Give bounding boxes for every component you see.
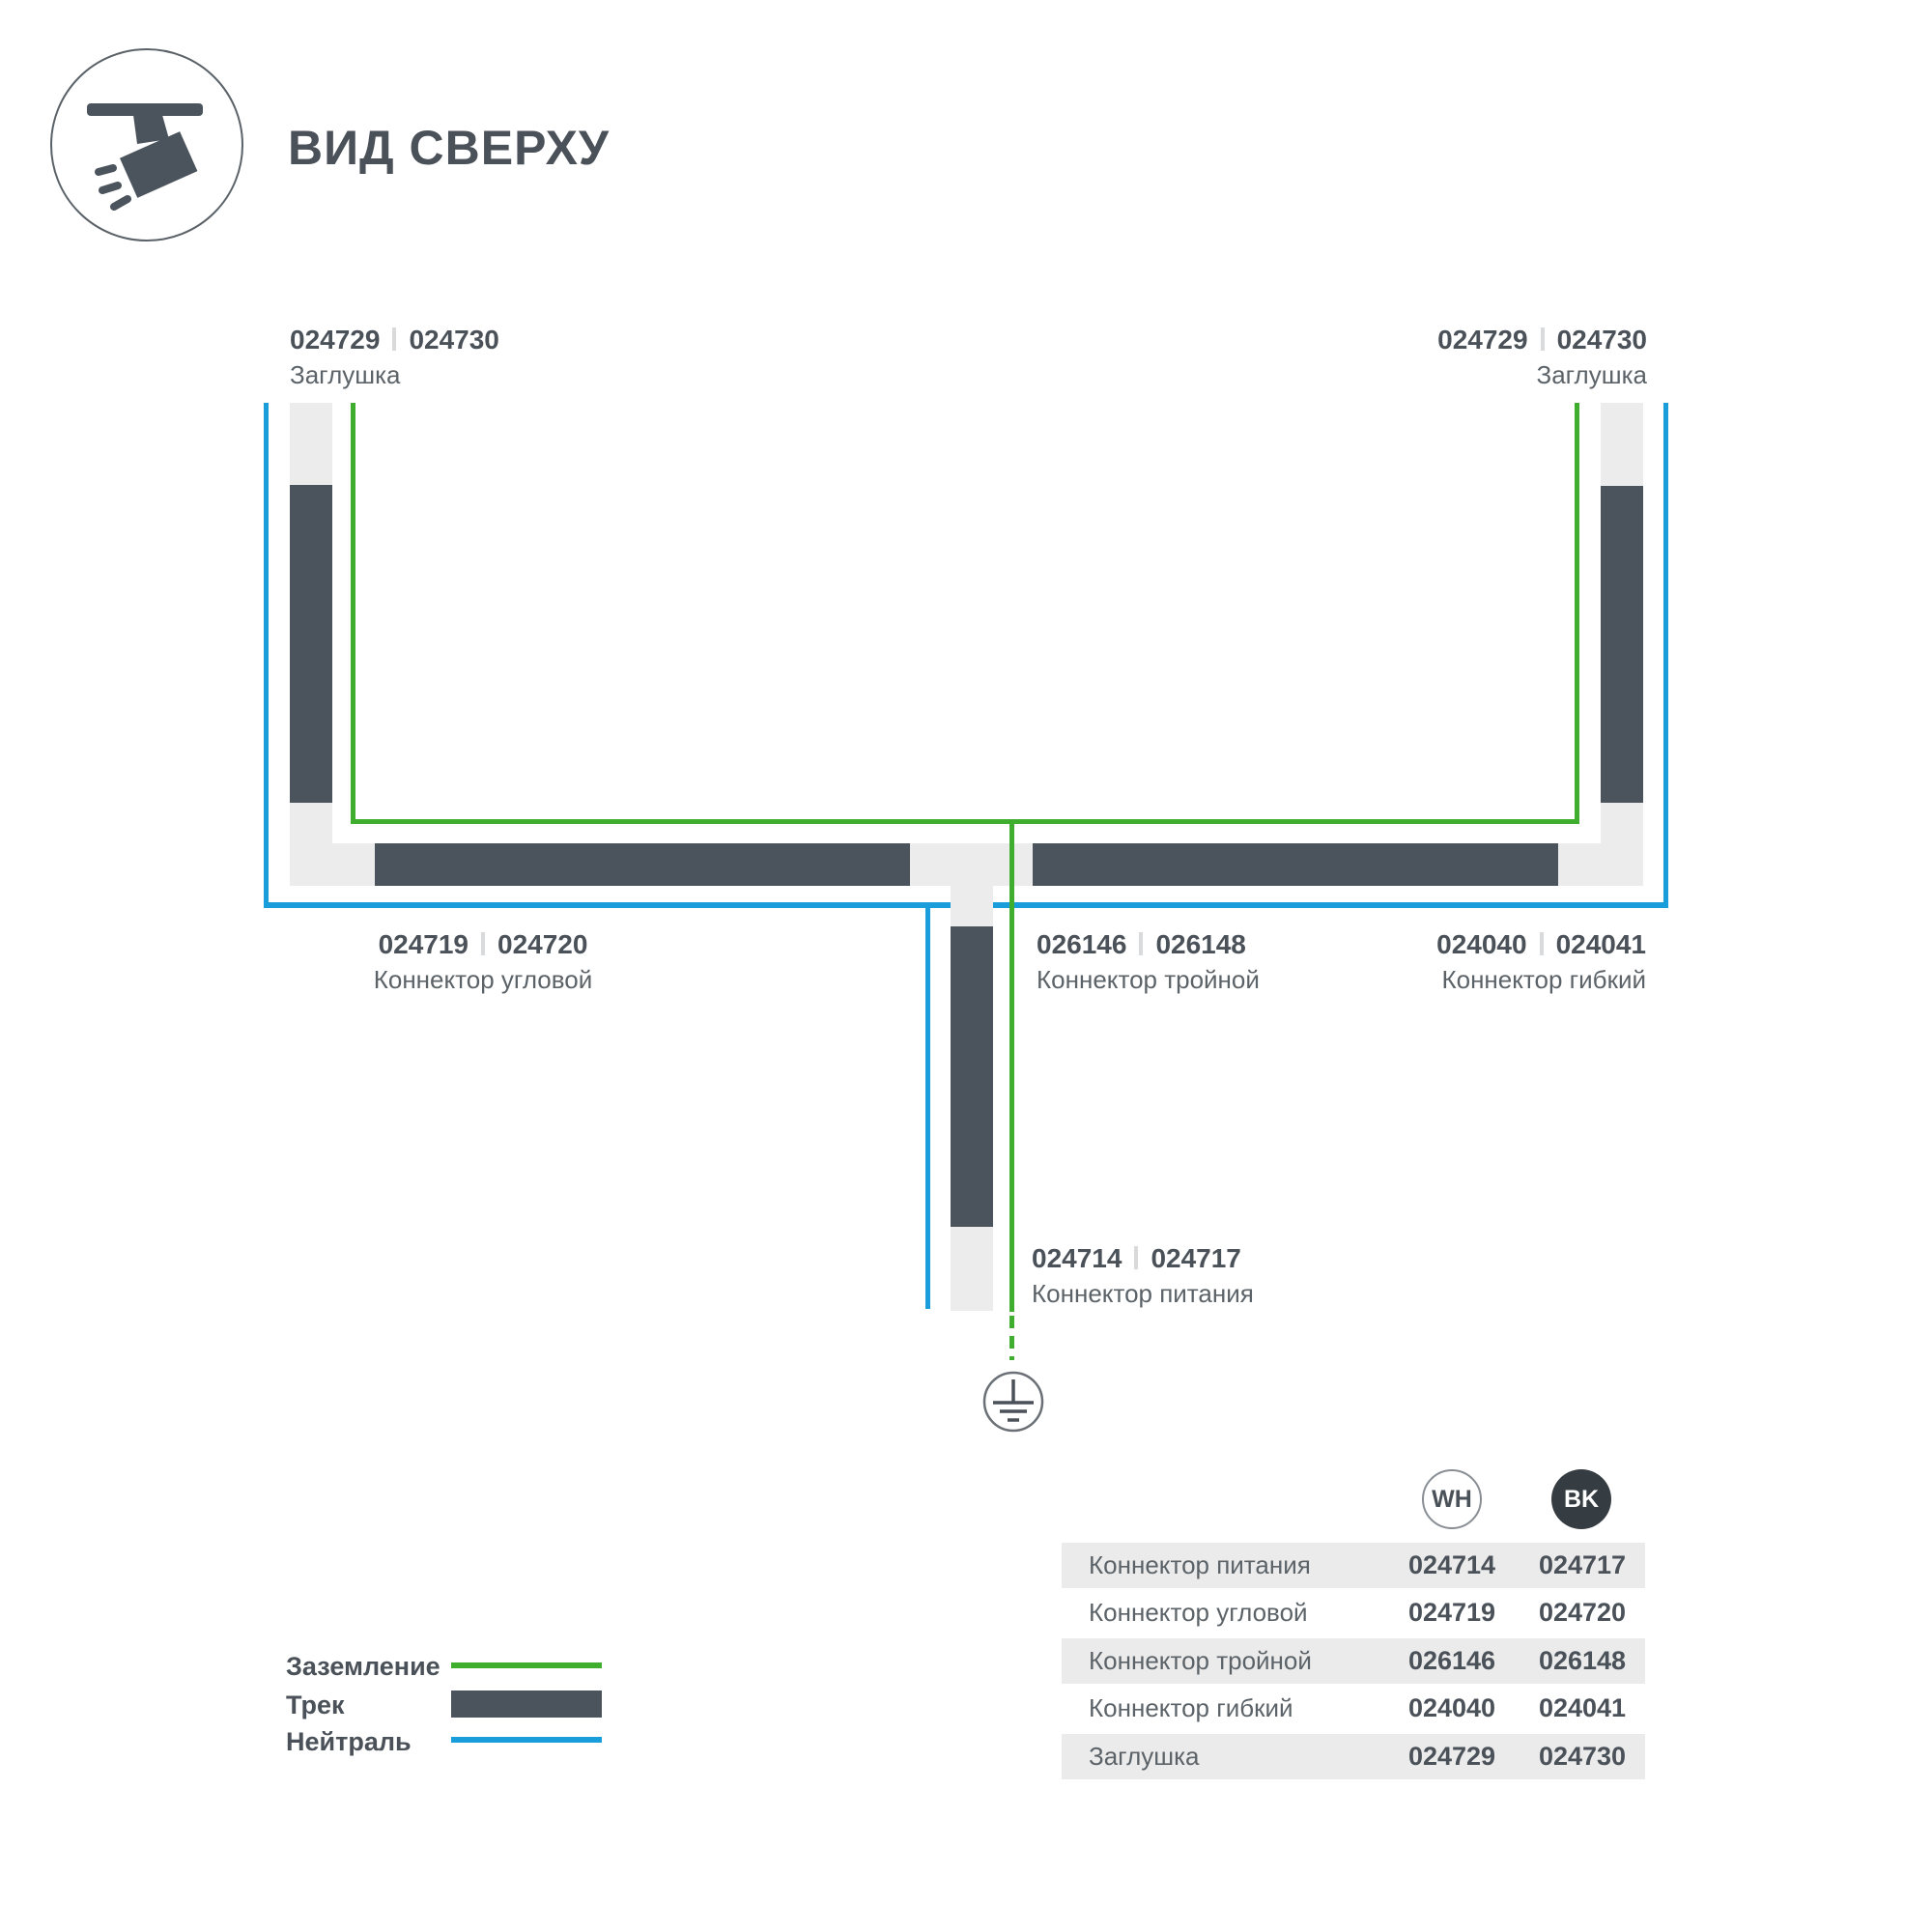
label-corner-connector: 024719024720 Коннектор угловой [290, 930, 676, 994]
page-title: ВИД СВЕРХУ [288, 120, 610, 176]
track-rail-right [1601, 486, 1643, 803]
earth-ground-icon [981, 1370, 1045, 1434]
row-name: Заглушка [1062, 1742, 1384, 1772]
row-code-bk: 024717 [1520, 1550, 1645, 1580]
row-name: Коннектор угловой [1062, 1598, 1384, 1628]
legend-label-neutral: Нейтраль [286, 1727, 412, 1757]
neutral-wire-right [1663, 403, 1668, 908]
row-code-bk: 024730 [1520, 1742, 1645, 1772]
track-rail-left [290, 485, 332, 803]
flex-name: Коннектор гибкий [1436, 965, 1646, 994]
corner-codes: 024719024720 [290, 930, 676, 959]
table-row: Коннектор угловой 024719 024720 [1062, 1591, 1645, 1636]
ground-wire-dashed [1009, 1316, 1014, 1360]
row-code-wh: 024729 [1384, 1742, 1520, 1772]
legend-swatch-ground [451, 1662, 602, 1668]
ground-wire-center-drop [1009, 821, 1014, 1312]
label-triple-connector: 026146026148 Коннектор тройной [1037, 930, 1260, 994]
table-row: Коннектор гибкий 024040 024041 [1062, 1687, 1645, 1732]
code-divider [1540, 932, 1544, 955]
endcap-left-name: Заглушка [290, 360, 499, 389]
code-divider [392, 327, 396, 351]
power-codes: 024714024717 [1032, 1244, 1254, 1273]
corner-name: Коннектор угловой [290, 965, 676, 994]
label-endcap-left: 024729024730 Заглушка [290, 326, 499, 389]
row-code-bk: 026148 [1520, 1646, 1645, 1676]
ground-wire-right [1575, 403, 1579, 824]
row-code-wh: 024719 [1384, 1598, 1520, 1628]
endcap-right-codes: 024729024730 [1437, 326, 1647, 355]
track-rail-bottom-right [1033, 843, 1558, 886]
row-name: Коннектор гибкий [1062, 1693, 1384, 1723]
row-code-wh: 026146 [1384, 1646, 1520, 1676]
spotlight-track-icon [50, 48, 243, 241]
track-rail-center [951, 926, 993, 1227]
column-badge-white: WH [1422, 1469, 1482, 1529]
power-name: Коннектор питания [1032, 1279, 1254, 1308]
flex-codes: 024040024041 [1436, 930, 1646, 959]
triple-name: Коннектор тройной [1037, 965, 1260, 994]
ground-wire-bottom [351, 819, 1579, 824]
row-code-bk: 024720 [1520, 1598, 1645, 1628]
ground-wire-left [351, 403, 355, 824]
table-row: Заглушка 024729 024730 [1062, 1734, 1645, 1779]
legend-label-track: Трек [286, 1690, 345, 1720]
article-table: Коннектор питания 024714 024717 Коннекто… [1062, 1543, 1645, 1782]
legend-swatch-track [451, 1690, 602, 1718]
endcap-left-codes: 024729024730 [290, 326, 499, 355]
label-flex-connector: 024040024041 Коннектор гибкий [1436, 930, 1646, 994]
triple-codes: 026146026148 [1037, 930, 1260, 959]
row-code-bk: 024041 [1520, 1693, 1645, 1723]
endcap-right-name: Заглушка [1437, 360, 1647, 389]
track-rail-bottom-left [375, 843, 910, 886]
row-code-wh: 024714 [1384, 1550, 1520, 1580]
code-divider [1541, 327, 1545, 351]
table-row: Коннектор питания 024714 024717 [1062, 1543, 1645, 1588]
legend-swatch-neutral [451, 1737, 602, 1743]
neutral-wire-center-drop [925, 904, 930, 1309]
label-endcap-right: 024729024730 Заглушка [1437, 326, 1647, 389]
code-divider [481, 932, 485, 955]
table-row: Коннектор тройной 026146 026148 [1062, 1638, 1645, 1684]
neutral-wire-left [264, 403, 269, 908]
code-divider [1139, 932, 1143, 955]
code-divider [1134, 1246, 1138, 1269]
label-power-connector: 024714024717 Коннектор питания [1032, 1244, 1254, 1308]
row-name: Коннектор тройной [1062, 1646, 1384, 1676]
legend-label-ground: Заземление [286, 1652, 440, 1682]
column-badge-black: BK [1551, 1469, 1611, 1529]
corner-connector-left [290, 843, 375, 886]
row-name: Коннектор питания [1062, 1550, 1384, 1580]
row-code-wh: 024040 [1384, 1693, 1520, 1723]
spotlight-track-glyph [52, 50, 238, 236]
